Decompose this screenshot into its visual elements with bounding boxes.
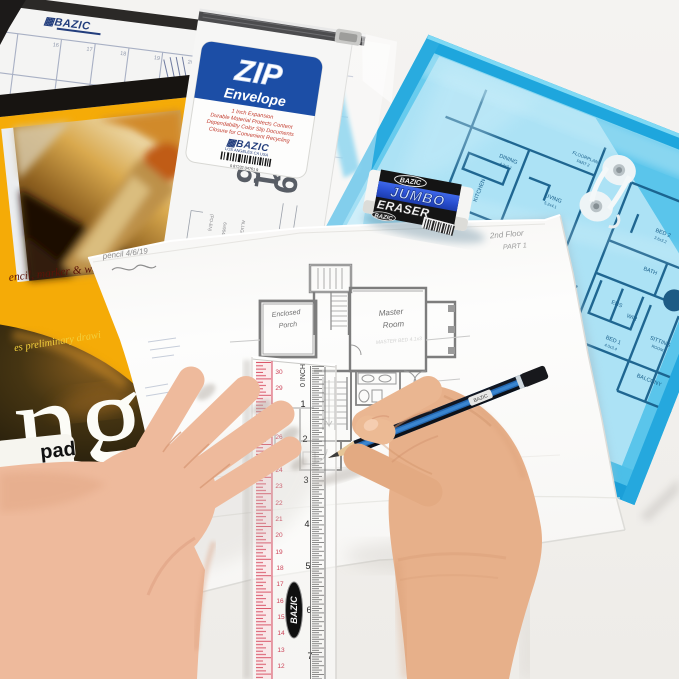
- svg-text:19: 19: [275, 549, 283, 556]
- svg-text:5: 5: [305, 561, 310, 571]
- svg-text:16: 16: [276, 598, 284, 605]
- svg-text:16: 16: [52, 42, 59, 49]
- svg-text:30: 30: [275, 369, 283, 376]
- svg-text:1: 1: [300, 399, 305, 409]
- svg-text:15: 15: [277, 614, 285, 621]
- svg-text:17: 17: [276, 581, 284, 588]
- svg-text:12: 12: [277, 663, 285, 670]
- svg-text:29: 29: [275, 385, 283, 392]
- svg-text:13: 13: [277, 647, 285, 654]
- svg-text:BAZIC: BAZIC: [289, 596, 299, 624]
- svg-text:0 INCH: 0 INCH: [300, 364, 307, 387]
- svg-text:18: 18: [120, 51, 127, 58]
- svg-text:19: 19: [153, 55, 160, 62]
- svg-text:17: 17: [86, 47, 93, 54]
- svg-text:14: 14: [277, 630, 285, 637]
- svg-text:4: 4: [304, 519, 309, 529]
- svg-text:Room: Room: [382, 319, 404, 330]
- svg-text:7: 7: [307, 651, 312, 661]
- svg-text:pad: pad: [39, 438, 77, 464]
- svg-text:18: 18: [276, 565, 284, 572]
